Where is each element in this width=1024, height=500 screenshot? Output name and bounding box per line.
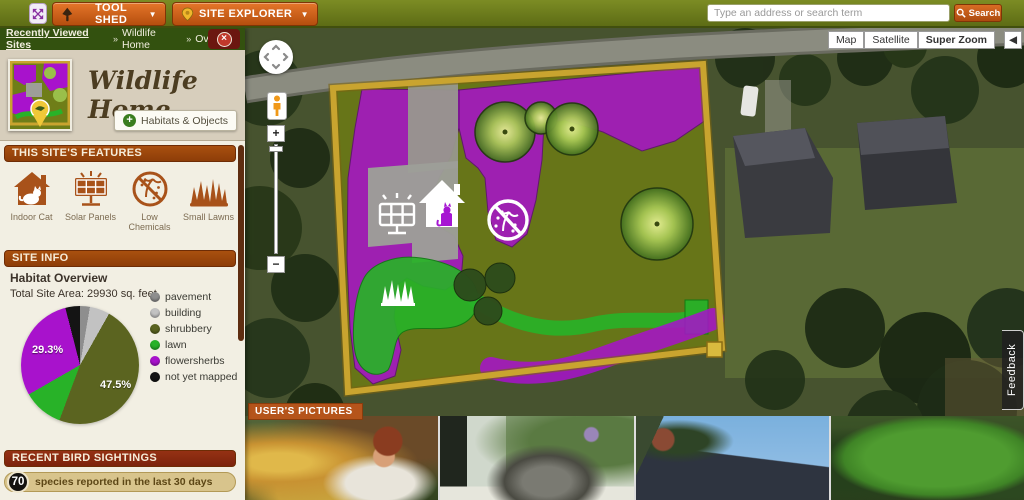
site-thumbnail	[8, 59, 72, 131]
chevron-down-icon: ▼	[149, 10, 157, 19]
sidebar-scrollbar[interactable]	[238, 145, 244, 341]
map-type-map-button[interactable]: Map	[828, 31, 864, 49]
map-type-satellite-button[interactable]: Satellite	[864, 31, 917, 49]
user-picture-3[interactable]	[636, 416, 829, 500]
feature-label: Small Lawns	[183, 212, 234, 222]
legend-item: flowersherbs	[150, 355, 238, 367]
site-info-section-header: SITE INFO	[4, 250, 236, 267]
plus-icon: +	[123, 114, 136, 127]
feature-small-lawns[interactable]: Small Lawns	[181, 167, 237, 247]
low-chemicals-icon	[128, 169, 172, 209]
legend-item: building	[150, 307, 238, 319]
search-button-label: Search	[969, 8, 1001, 19]
site-explorer-button[interactable]: SITE EXPLORER ▼	[172, 2, 318, 26]
legend-item: not yet mapped	[150, 371, 238, 383]
legend-item: pavement	[150, 291, 238, 303]
topbar: TOOL SHED ▼ SITE EXPLORER ▼ Search	[0, 0, 1024, 28]
solar-panels-icon	[69, 169, 113, 209]
user-picture-1[interactable]	[245, 416, 438, 500]
indoor-cat-icon	[10, 169, 54, 209]
total-site-area: Total Site Area: 29930 sq. feet	[10, 288, 157, 300]
habitat-overlay	[333, 64, 722, 392]
grass-map-icon-base	[381, 303, 415, 306]
feature-indoor-cat[interactable]: Indoor Cat	[4, 167, 60, 247]
habitat-pie-chart	[21, 306, 139, 424]
collapse-panel-button[interactable]: ◀	[1004, 31, 1022, 49]
habitats-objects-label: Habitats & Objects	[141, 115, 228, 127]
zoom-slider-handle[interactable]	[269, 146, 283, 152]
feature-label: Low Chemicals	[122, 212, 178, 233]
pan-arrows-icon	[259, 40, 293, 74]
pie-slice-label-shrubbery: 47.5%	[100, 379, 131, 391]
species-count-badge: 70	[7, 471, 29, 493]
chevron-down-icon: ▼	[301, 10, 309, 19]
user-pictures-strip	[245, 416, 1024, 500]
yardmap-app: TOOL SHED ▼ SITE EXPLORER ▼ Search	[0, 0, 1024, 500]
user-picture-2[interactable]	[440, 416, 633, 500]
close-panel-button[interactable]: ×	[208, 29, 240, 49]
site-features-row: Indoor Cat Solar Panels	[2, 167, 238, 247]
users-pictures-label: USER'S PICTURES	[248, 403, 363, 420]
driveway	[408, 78, 458, 173]
map-type-super-zoom-button[interactable]: Super Zoom	[918, 31, 995, 49]
close-icon: ×	[217, 32, 232, 47]
expand-arrows-icon	[32, 8, 44, 20]
features-section-header: THIS SITE'S FEATURES	[4, 145, 236, 162]
feature-label: Solar Panels	[65, 212, 116, 222]
neighbor-house	[857, 116, 957, 210]
zoom-in-button[interactable]: +	[267, 125, 285, 142]
search-input[interactable]	[707, 4, 950, 22]
bird-sightings-section-header: RECENT BIRD SIGHTINGS	[4, 450, 236, 467]
expand-button[interactable]	[29, 3, 47, 24]
bird-sightings-summary[interactable]: 70 species reported in the last 30 days	[4, 472, 236, 492]
breadcrumb-separator: »	[113, 34, 118, 44]
small-lawns-icon	[187, 169, 231, 209]
habitat-overview-title: Habitat Overview	[10, 271, 107, 285]
pie-slice-label-flowersherbs: 29.3%	[32, 344, 63, 356]
zoom-slider[interactable]	[274, 144, 278, 254]
feature-solar-panels[interactable]: Solar Panels	[63, 167, 119, 247]
map-pin-icon	[181, 6, 194, 22]
bird-sightings-text: species reported in the last 30 days	[35, 476, 212, 488]
feature-low-chemicals[interactable]: Low Chemicals	[122, 167, 178, 247]
boundary-marker	[707, 342, 722, 357]
site-header-card: Wildlife Home + Habitats & Objects	[0, 50, 245, 141]
pegman-icon	[271, 95, 283, 117]
legend-item: shrubbery	[150, 323, 238, 335]
site-overview-panel: Recently Viewed Sites » Wildlife Home » …	[0, 28, 245, 500]
trowel-icon	[61, 7, 74, 22]
search-button[interactable]: Search	[954, 4, 1002, 22]
feature-label: Indoor Cat	[10, 212, 52, 222]
pie-legend: pavementbuildingshrubberylawnflowersherb…	[150, 291, 238, 387]
zoom-out-button[interactable]: −	[267, 256, 285, 273]
habitats-objects-button[interactable]: + Habitats & Objects	[114, 110, 237, 131]
map-canvas[interactable]: Map Satellite Super Zoom ◀ + − USER'S PI	[245, 28, 1024, 500]
street-view-pegman[interactable]	[267, 92, 287, 120]
breadcrumb: Recently Viewed Sites » Wildlife Home » …	[0, 28, 245, 50]
tool-shed-button[interactable]: TOOL SHED ▼	[52, 2, 166, 26]
search-bar: Search	[707, 4, 1002, 22]
breadcrumb-recently-viewed-link[interactable]: Recently Viewed Sites	[6, 27, 109, 51]
legend-item: lawn	[150, 339, 238, 351]
breadcrumb-separator: »	[186, 34, 191, 44]
search-icon	[956, 8, 966, 18]
tool-shed-label: TOOL SHED	[79, 2, 144, 26]
feedback-tab[interactable]: Feedback	[1002, 330, 1024, 410]
user-picture-4[interactable]	[831, 416, 1024, 500]
map-type-controls: Map Satellite Super Zoom ◀	[828, 31, 1022, 49]
breadcrumb-site-link[interactable]: Wildlife Home	[122, 27, 182, 51]
site-explorer-label: SITE EXPLORER	[199, 8, 292, 20]
pan-control[interactable]	[259, 40, 293, 74]
